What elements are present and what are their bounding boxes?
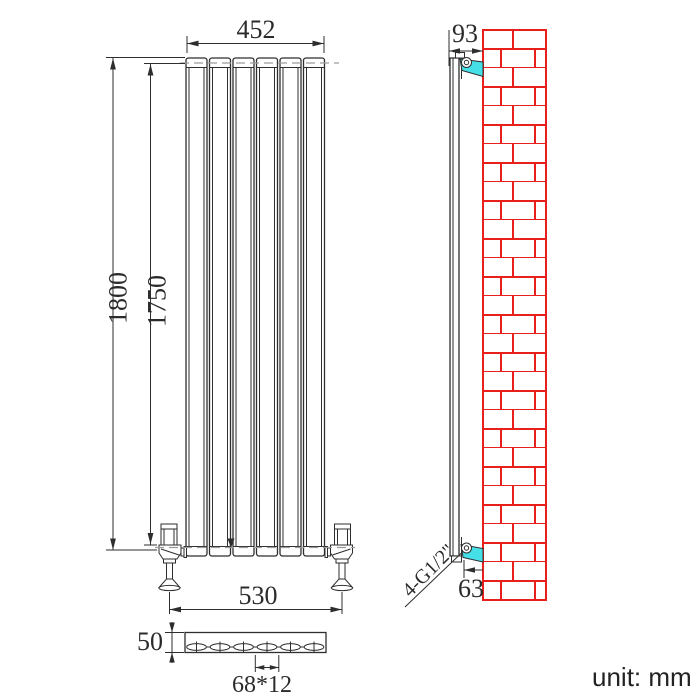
radiator-technical-drawing: 452 1800 1750 530 — [0, 0, 700, 700]
bottom-wall-bracket — [461, 537, 483, 562]
plan-view: 50 68*12 — [137, 622, 326, 698]
thread-spec-callout: 4-G1/2" — [398, 540, 462, 607]
radiator-side-profile — [450, 58, 462, 562]
left-valve — [159, 524, 187, 591]
dimension-1750: 1750 — [143, 64, 186, 546]
right-valve — [325, 524, 353, 591]
front-view: 452 1800 1750 530 — [104, 15, 356, 614]
radiator-panel — [304, 58, 325, 556]
dimension-68x12: 68*12 — [232, 655, 292, 698]
dimension-63: 63 — [458, 560, 484, 603]
side-view: 93 63 4-G1/2" — [398, 19, 546, 607]
side-top-gap-label: 93 — [452, 19, 478, 48]
front-inner-height-label: 1750 — [143, 275, 172, 327]
unit-label: unit: mm — [592, 662, 692, 692]
radiator-panel — [186, 58, 207, 556]
radiator-panels — [186, 58, 325, 556]
dimension-452: 452 — [187, 15, 324, 53]
radiator-panel — [210, 58, 231, 556]
plan-outline — [185, 633, 326, 653]
radiator-panel — [257, 58, 278, 556]
radiator-panel — [280, 58, 301, 556]
dimension-530: 530 — [170, 581, 343, 614]
front-width-label: 452 — [237, 15, 276, 44]
front-height-label: 1800 — [104, 272, 133, 324]
pipe-spacing-label: 530 — [239, 581, 278, 610]
plan-depth-label: 50 — [137, 627, 163, 656]
side-bottom-gap-label: 63 — [458, 574, 484, 603]
top-bracket-screw — [462, 58, 472, 68]
plan-slot-spec-label: 68*12 — [232, 672, 292, 698]
bottom-bracket-screw — [462, 543, 472, 553]
dimension-50: 50 — [137, 622, 184, 663]
thread-spec-label: 4-G1/2" — [398, 540, 459, 601]
brick-wall — [483, 30, 546, 600]
radiator-panel — [233, 58, 254, 556]
